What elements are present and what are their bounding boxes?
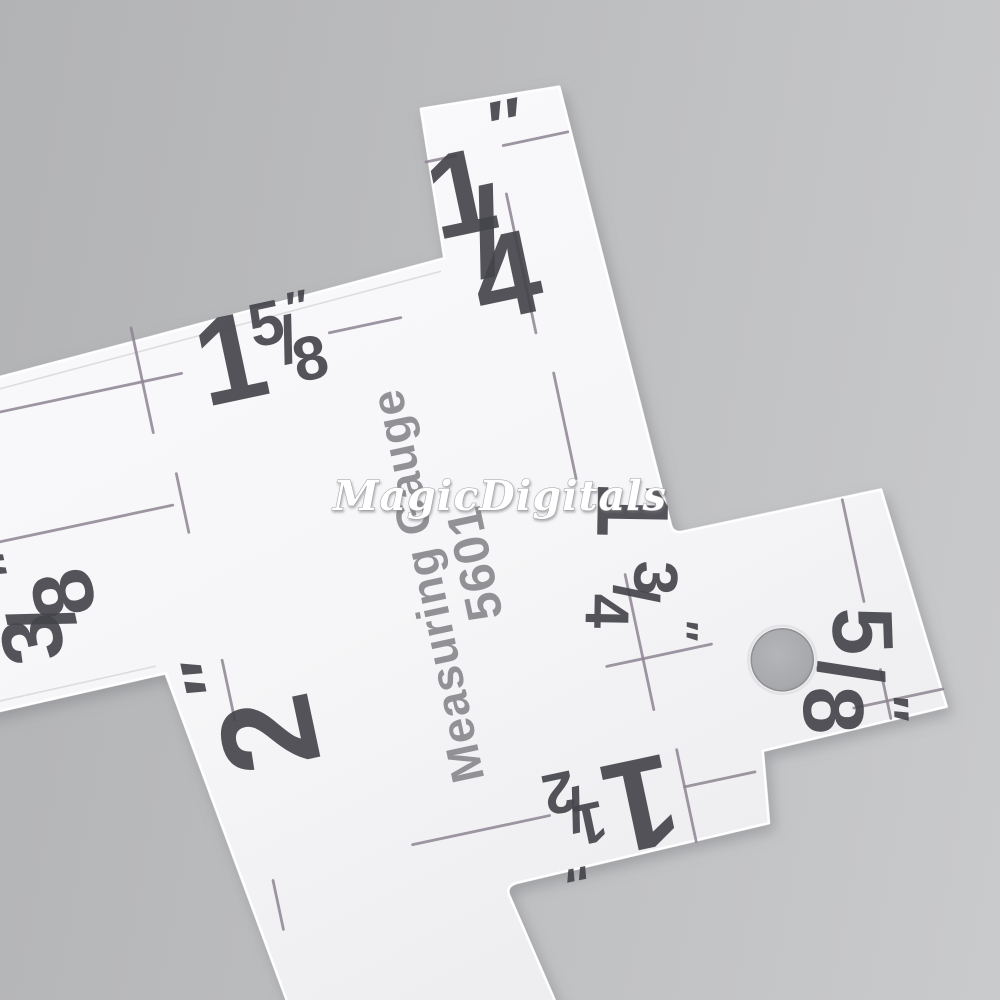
label-five-eighths-numerator: 5 <box>813 605 911 656</box>
label-one-three-quarters-denominator: 4 <box>572 593 642 629</box>
watermark: MagicDigitals <box>331 472 667 520</box>
label-one-three-quarters-inch-mark: ″ <box>657 617 706 641</box>
label-five-eighths-inch-mark: ″ <box>857 692 921 723</box>
product-photo-measuring-gauge: 1 / 4 ″ 1 5 / 8 ″ 3 / 8 ″ 2 ″ 1 3 <box>0 0 1000 1000</box>
